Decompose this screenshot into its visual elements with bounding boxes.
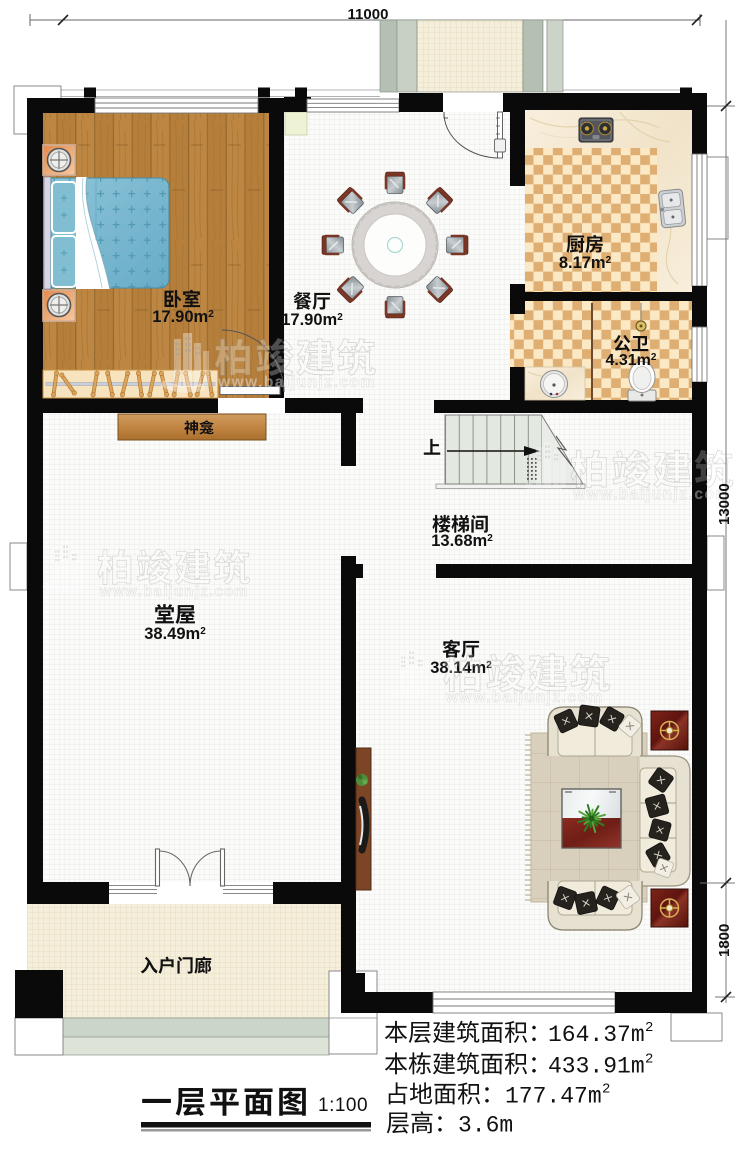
svg-text:1:100: 1:100: [318, 1095, 368, 1116]
svg-text:8.17m2: 8.17m2: [559, 254, 612, 272]
svg-text:2: 2: [645, 1052, 653, 1068]
svg-text:177.47m: 177.47m: [505, 1084, 602, 1110]
svg-text:www.baijunjz.com: www.baijunjz.com: [572, 486, 731, 503]
svg-text:38.49m2: 38.49m2: [144, 625, 206, 643]
svg-text:17.90m2: 17.90m2: [152, 308, 214, 326]
svg-text:1800: 1800: [716, 924, 733, 957]
svg-text:13000: 13000: [716, 483, 733, 525]
svg-text:www.baijunjz.com: www.baijunjz.com: [445, 689, 604, 706]
svg-text:4.31m2: 4.31m2: [606, 352, 657, 369]
svg-text:13.68m2: 13.68m2: [431, 532, 493, 550]
svg-text:164.37m: 164.37m: [548, 1022, 645, 1048]
svg-text:2: 2: [602, 1082, 610, 1098]
svg-text:17.90m2: 17.90m2: [281, 311, 343, 329]
svg-text:www.baijunjz.com: www.baijunjz.com: [217, 374, 376, 391]
svg-text:www.baijunjz.com: www.baijunjz.com: [99, 584, 249, 600]
svg-text:433.91m: 433.91m: [548, 1054, 645, 1080]
svg-text:3.6m: 3.6m: [458, 1113, 513, 1139]
svg-text:2: 2: [645, 1020, 653, 1036]
